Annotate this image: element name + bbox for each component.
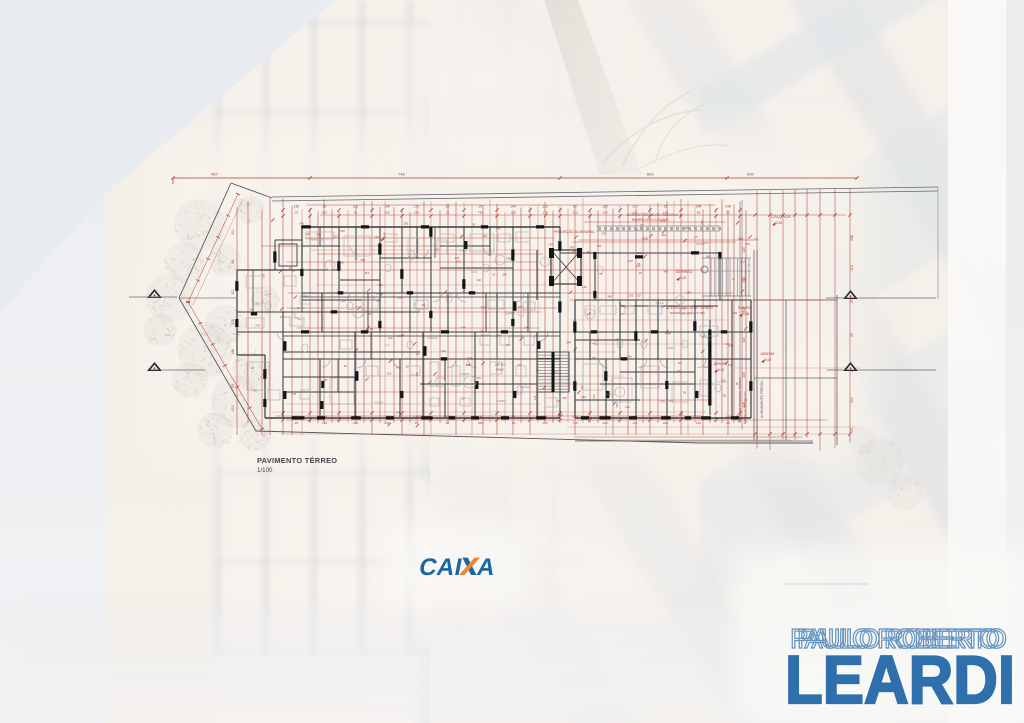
svg-text:LEARDI: LEARDI [785, 642, 1015, 718]
svg-text:310: 310 [562, 396, 567, 400]
svg-text:178: 178 [660, 400, 665, 404]
svg-text:248: 248 [382, 232, 386, 237]
svg-text:150: 150 [482, 234, 487, 238]
svg-text:115: 115 [633, 421, 638, 425]
svg-text:205: 205 [629, 293, 634, 297]
svg-text:205: 205 [254, 301, 259, 305]
svg-text:RAMPA i=8,33% C=4,00m: RAMPA i=8,33% C=4,00m [743, 391, 747, 424]
svg-text:248: 248 [353, 421, 358, 425]
svg-text:SUITE: SUITE [375, 401, 383, 405]
svg-text:95: 95 [370, 327, 374, 331]
svg-text:120: 120 [742, 247, 746, 253]
svg-text:PAVIMENTO TÉRREO: PAVIMENTO TÉRREO [257, 456, 337, 465]
svg-text:600: 600 [647, 172, 654, 177]
svg-text:740: 740 [592, 394, 596, 399]
svg-text:0,00: 0,00 [718, 368, 724, 372]
svg-text:20: 20 [416, 352, 420, 356]
svg-text:150: 150 [602, 211, 607, 215]
svg-text:310: 310 [661, 233, 666, 237]
svg-text:120: 120 [668, 399, 673, 403]
svg-text:SUITE: SUITE [606, 393, 614, 397]
svg-text:20: 20 [323, 205, 327, 209]
svg-text:248: 248 [696, 205, 702, 209]
svg-text:205: 205 [316, 233, 321, 237]
svg-text:15: 15 [446, 211, 450, 215]
svg-text:25: 25 [695, 235, 699, 239]
svg-text:1/100: 1/100 [257, 467, 273, 474]
svg-text:146: 146 [733, 311, 738, 315]
svg-text:25: 25 [295, 421, 299, 425]
svg-text:146: 146 [582, 285, 587, 289]
svg-text:900: 900 [747, 172, 754, 177]
svg-text:SUITE: SUITE [655, 301, 663, 305]
svg-text:95: 95 [344, 364, 348, 368]
svg-text:85: 85 [697, 211, 701, 215]
svg-text:25: 25 [664, 205, 668, 209]
svg-text:120: 120 [602, 421, 607, 425]
svg-text:25: 25 [492, 273, 496, 277]
svg-text:COZ.: COZ. [471, 270, 478, 274]
svg-text:340: 340 [597, 244, 602, 248]
svg-text:120: 120 [322, 421, 327, 425]
svg-text:310: 310 [703, 365, 708, 369]
svg-text:248: 248 [725, 205, 731, 209]
svg-text:310: 310 [231, 289, 235, 295]
svg-text:115: 115 [543, 421, 548, 425]
svg-text:120: 120 [632, 205, 638, 209]
svg-text:25: 25 [231, 384, 235, 388]
svg-text:JARDIM: JARDIM [713, 362, 727, 366]
svg-text:25: 25 [850, 333, 854, 337]
svg-text:740: 740 [548, 243, 553, 247]
svg-text:0,00: 0,00 [680, 276, 686, 280]
svg-text:340: 340 [663, 269, 668, 273]
svg-text:310: 310 [850, 397, 854, 403]
svg-text:90: 90 [446, 421, 450, 425]
svg-text:340: 340 [481, 306, 486, 310]
svg-text:348: 348 [700, 220, 704, 225]
svg-text:205: 205 [322, 211, 327, 215]
svg-text:340: 340 [511, 205, 517, 209]
svg-text:95: 95 [683, 390, 687, 394]
svg-text:146: 146 [378, 283, 383, 287]
svg-text:A.S.: A.S. [510, 311, 516, 315]
svg-text:348: 348 [441, 349, 446, 353]
svg-text:310: 310 [593, 342, 598, 346]
svg-text:150: 150 [620, 312, 625, 316]
svg-text:150: 150 [294, 205, 300, 209]
svg-text:115: 115 [742, 337, 746, 342]
svg-text:DORM.: DORM. [461, 372, 471, 376]
svg-text:348: 348 [607, 294, 612, 298]
svg-text:240: 240 [738, 237, 744, 241]
svg-text:SALA: SALA [408, 256, 415, 260]
svg-text:VAR.: VAR. [668, 346, 675, 350]
svg-text:77: 77 [754, 237, 758, 241]
svg-text:ACESSO VEÍCULOS SUBSOLO 1: ACESSO VEÍCULOS SUBSOLO 1 [627, 213, 681, 217]
svg-text:VAR.: VAR. [702, 241, 709, 245]
svg-text:0,00: 0,00 [776, 221, 782, 225]
svg-text:RAMPA: RAMPA [738, 306, 751, 310]
svg-text:150: 150 [360, 258, 365, 262]
svg-text:25: 25 [639, 271, 643, 275]
svg-text:115: 115 [615, 403, 619, 408]
svg-text:248: 248 [461, 326, 466, 330]
svg-text:ALINHAMENTO PREDIAL: ALINHAMENTO PREDIAL [760, 380, 764, 418]
svg-text:740: 740 [374, 235, 379, 239]
svg-text:95: 95 [231, 260, 235, 264]
svg-text:20: 20 [446, 205, 450, 209]
svg-text:150: 150 [602, 205, 608, 209]
svg-text:A.S.: A.S. [599, 298, 605, 302]
svg-text:740: 740 [252, 389, 257, 393]
svg-text:90: 90 [573, 205, 577, 209]
svg-text:A.S.: A.S. [385, 343, 391, 347]
svg-text:25: 25 [850, 428, 854, 432]
svg-text:205: 205 [384, 211, 389, 215]
svg-text:248: 248 [414, 211, 419, 215]
svg-text:ACESSO PEDESTRE TÉRREO: ACESSO PEDESTRE TÉRREO [666, 305, 713, 310]
svg-text:340: 340 [725, 342, 730, 346]
svg-text:SUITE: SUITE [292, 307, 300, 311]
svg-text:150: 150 [636, 264, 641, 268]
svg-text:340: 340 [580, 385, 584, 390]
svg-text:RAMPA i=20% C=23,50m: RAMPA i=20% C=23,50m [632, 218, 669, 222]
svg-text:340: 340 [502, 273, 507, 277]
svg-text:487: 487 [211, 172, 218, 177]
svg-text:25: 25 [680, 411, 684, 415]
svg-text:340: 340 [340, 229, 345, 233]
svg-text:9: 9 [748, 263, 750, 267]
svg-text:15: 15 [415, 421, 419, 425]
svg-text:SUITE: SUITE [459, 248, 467, 252]
svg-text:150: 150 [517, 363, 522, 367]
svg-text:740: 740 [478, 211, 483, 215]
svg-text:146: 146 [384, 205, 390, 209]
svg-text:15: 15 [726, 421, 730, 425]
svg-text:348: 348 [850, 235, 854, 241]
svg-text:90: 90 [726, 211, 730, 215]
svg-text:BANHO: BANHO [520, 385, 531, 389]
svg-text:348: 348 [566, 341, 571, 345]
svg-text:0,00: 0,00 [765, 358, 771, 362]
svg-text:120: 120 [625, 405, 630, 409]
svg-text:25: 25 [479, 205, 483, 209]
svg-text:146: 146 [231, 349, 235, 355]
svg-text:20: 20 [354, 211, 358, 215]
svg-text:TÉRREO: TÉRREO [675, 269, 693, 274]
svg-text:340: 340 [455, 256, 460, 260]
svg-text:978: 978 [642, 237, 648, 241]
svg-text:15: 15 [512, 421, 516, 425]
svg-text:248: 248 [497, 333, 502, 337]
svg-text:740: 740 [255, 324, 260, 328]
svg-text:310: 310 [572, 211, 577, 215]
svg-text:205: 205 [231, 319, 235, 325]
svg-text:310: 310 [249, 307, 254, 311]
svg-text:205: 205 [506, 256, 511, 260]
svg-text:248: 248 [686, 291, 691, 295]
svg-text:15: 15 [732, 277, 736, 281]
svg-text:205: 205 [663, 421, 668, 425]
svg-text:95: 95 [723, 394, 727, 398]
svg-text:JARDIM: JARDIM [760, 352, 774, 356]
svg-text:150: 150 [511, 211, 516, 215]
svg-text:146: 146 [476, 376, 481, 380]
svg-text:310: 310 [581, 395, 586, 399]
svg-text:120: 120 [676, 369, 681, 373]
svg-text:178: 178 [601, 232, 606, 236]
svg-text:340: 340 [476, 278, 481, 282]
svg-text:150: 150 [745, 242, 750, 246]
svg-text:BANHO: BANHO [427, 336, 438, 340]
svg-text:150: 150 [466, 362, 471, 366]
svg-text:120: 120 [415, 371, 419, 376]
svg-text:205: 205 [742, 372, 746, 378]
svg-text:205: 205 [478, 421, 483, 425]
svg-text:740: 740 [572, 421, 577, 425]
svg-text:310: 310 [628, 259, 633, 263]
svg-text:15: 15 [251, 366, 255, 370]
svg-text:25: 25 [472, 222, 476, 226]
svg-text:BANHO: BANHO [280, 315, 291, 319]
svg-text:APTO: APTO [495, 363, 505, 367]
svg-text:90: 90 [678, 361, 682, 365]
svg-text:115: 115 [850, 265, 854, 271]
svg-text:115: 115 [542, 205, 547, 209]
svg-text:PNE: PNE [496, 368, 504, 372]
svg-text:CALÇADA: CALÇADA [771, 214, 791, 219]
svg-text:ACESSO PEDESTRE TÉRREO: ACESSO PEDESTRE TÉRREO [737, 377, 742, 420]
svg-text:CAI: CAI [417, 554, 465, 581]
svg-text:120: 120 [456, 260, 461, 264]
svg-text:248: 248 [742, 278, 747, 282]
svg-text:DORM.: DORM. [497, 399, 507, 403]
svg-text:748: 748 [398, 172, 405, 177]
svg-text:340: 340 [627, 354, 632, 358]
svg-text:0,08: 0,08 [743, 312, 749, 316]
svg-text:146: 146 [696, 421, 701, 425]
svg-text:115: 115 [533, 395, 537, 400]
svg-text:RAMPA i=8,33% C=3,78m: RAMPA i=8,33% C=3,78m [670, 311, 706, 315]
svg-text:20: 20 [406, 365, 410, 369]
svg-text:150: 150 [414, 205, 420, 209]
svg-text:20: 20 [295, 211, 299, 215]
svg-text:150: 150 [387, 371, 392, 375]
svg-text:95: 95 [592, 356, 596, 360]
svg-text:340: 340 [299, 221, 304, 225]
svg-text:120: 120 [353, 205, 359, 209]
svg-text:115: 115 [365, 271, 370, 275]
svg-text:150: 150 [403, 222, 408, 226]
svg-text:310: 310 [231, 229, 235, 235]
svg-text:310: 310 [636, 294, 641, 298]
svg-text:310: 310 [231, 405, 235, 411]
svg-text:20: 20 [461, 397, 465, 401]
